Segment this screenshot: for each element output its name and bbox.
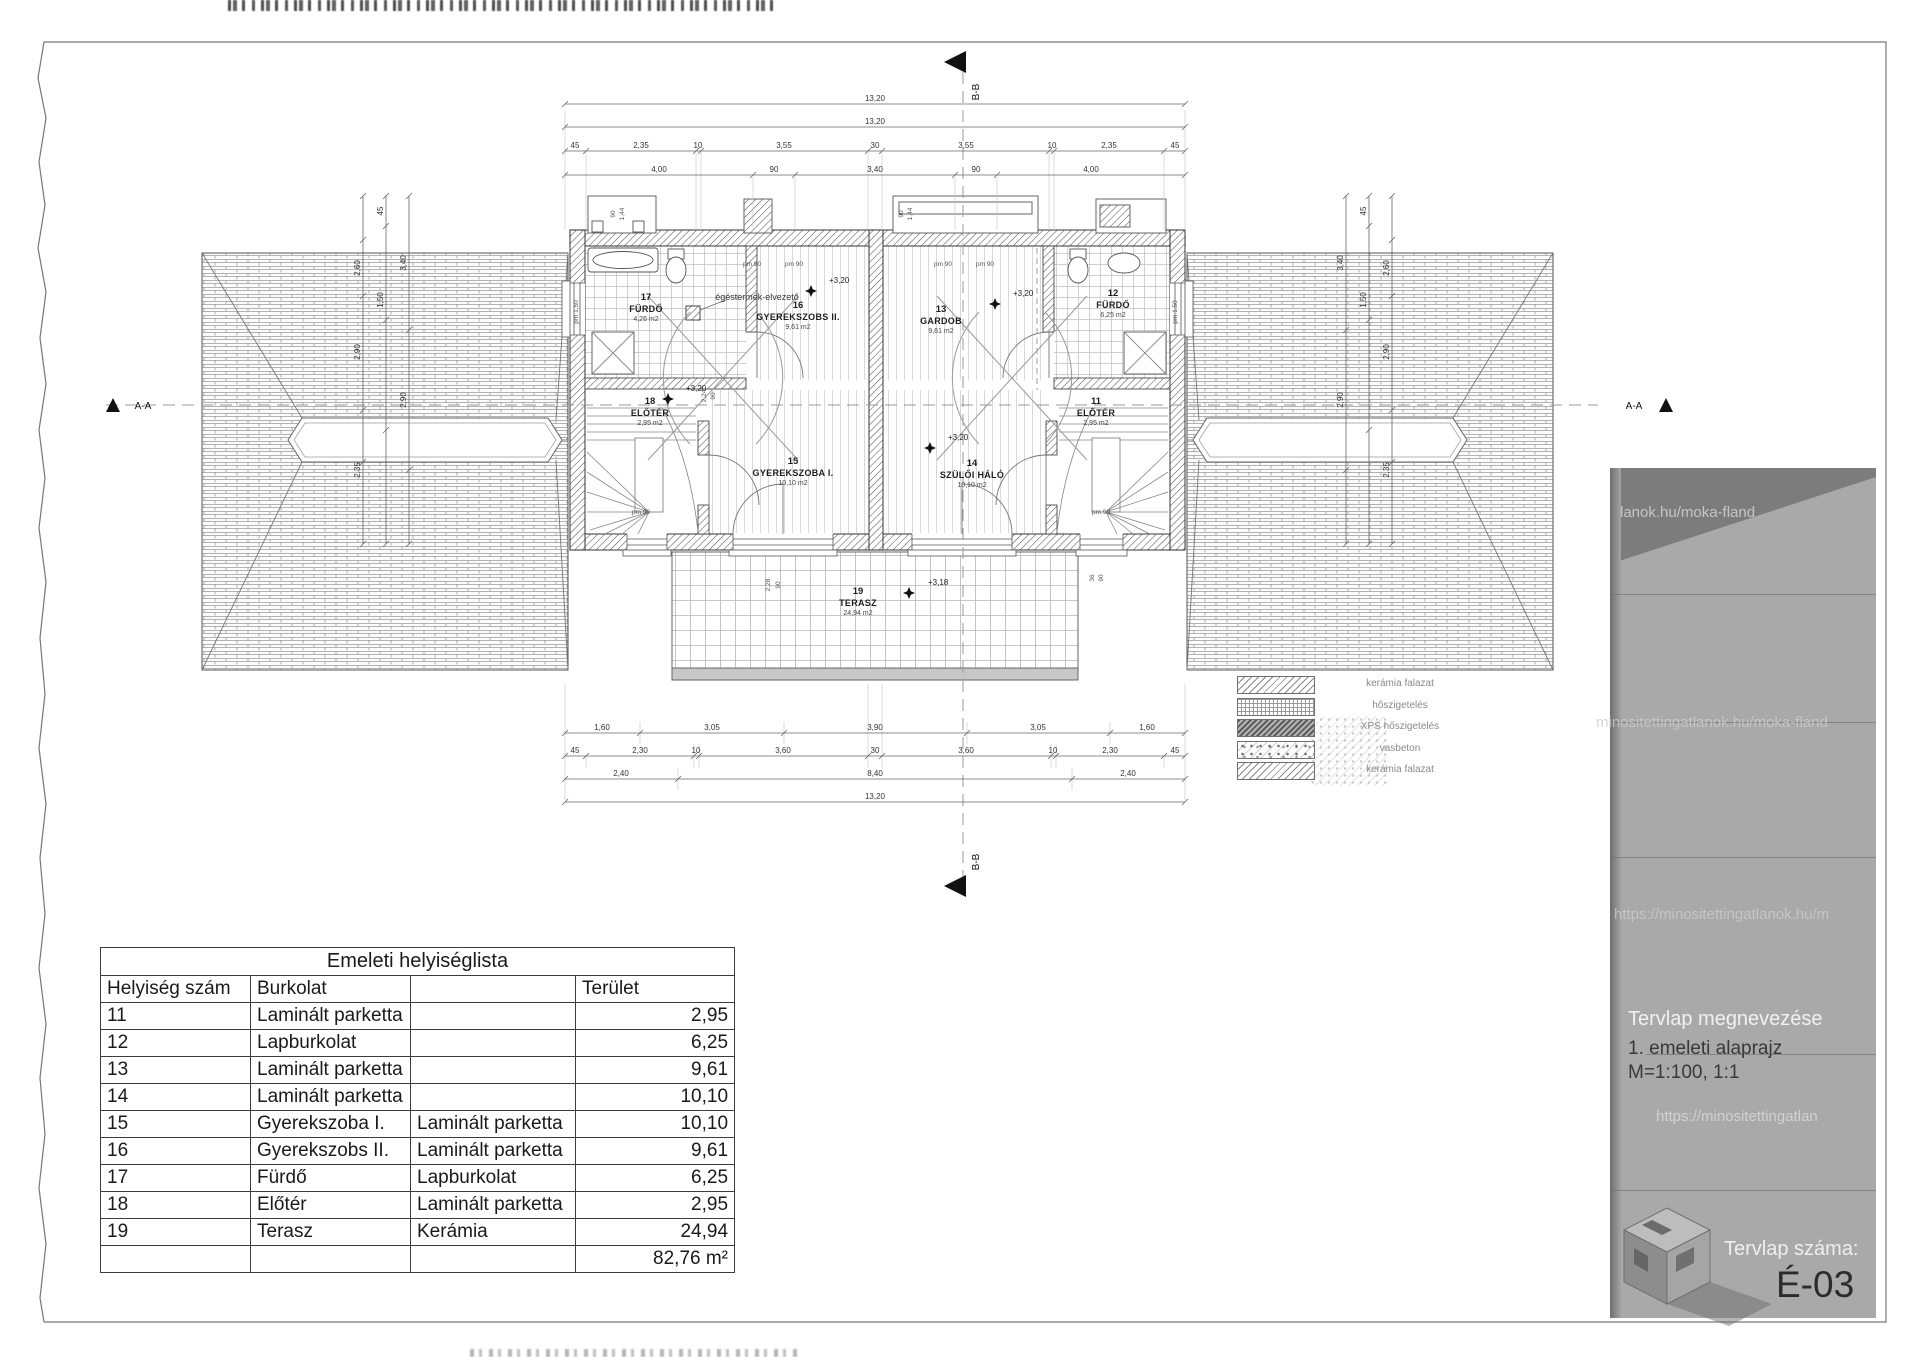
small-dim-label: 90: [775, 581, 782, 589]
dimension-label: 2,90: [1382, 344, 1391, 360]
dimension-label: 3,40: [399, 255, 408, 271]
room-name: FÜRDŐ: [1096, 299, 1130, 310]
dimension-label: 2,90: [353, 344, 362, 360]
room-cell-area: 10,10: [576, 1111, 735, 1138]
dimension-label: 3,40: [1336, 255, 1345, 271]
watermark: minositettingatlanok.hu/moka-fland: [1596, 714, 1828, 731]
room-number: 15: [788, 456, 799, 467]
legend-item: kerámia falazat: [1237, 676, 1467, 695]
legend-label: kerámia falazat: [1337, 678, 1463, 689]
legend-item: vasbeton: [1237, 741, 1467, 760]
dimension-label: 3,90: [867, 723, 883, 732]
col-header-blank: [411, 976, 576, 1003]
dimension-label: 45: [1359, 206, 1368, 215]
legend-label: vasbeton: [1337, 743, 1463, 754]
room-cell-area: 9,61: [576, 1138, 735, 1165]
room-row: 15Gyerekszoba I.Laminált parketta10,10: [101, 1111, 735, 1138]
room-cell-c2: Laminált parketta: [251, 1003, 411, 1030]
room-cell-area: 10,10: [576, 1084, 735, 1111]
room-cell-c3: [411, 1030, 576, 1057]
room-cell-area: 2,95: [576, 1192, 735, 1219]
dimension-label: 1,60: [594, 723, 610, 732]
dimension-label: 3,55: [776, 141, 792, 150]
parapet-label: pm 90: [743, 261, 761, 268]
panel-divider: [1610, 594, 1876, 595]
room-row: 12Lapburkolat6,25: [101, 1030, 735, 1057]
dimension-label: 3,55: [958, 141, 974, 150]
room-row: 18ElőtérLaminált parketta2,95: [101, 1192, 735, 1219]
level-value: +3,18: [928, 578, 949, 587]
roof-right: [1187, 253, 1553, 670]
dimension-label: 90: [770, 165, 779, 174]
small-dim-label: 90: [610, 210, 617, 218]
dimension-label: 45: [376, 206, 385, 215]
watermark: https://minositettingatlan: [1656, 1108, 1818, 1125]
section-b-arrow-bottom: [944, 875, 966, 897]
room-row: 13Laminált parketta9,61: [101, 1057, 735, 1084]
flue-label: égéstermék-elvezető: [715, 292, 799, 302]
dimension-label: 1,60: [1139, 723, 1155, 732]
room-number: 11: [1091, 396, 1102, 407]
room-cell-c3: Laminált parketta: [411, 1111, 576, 1138]
room-cell-area: 2,95: [576, 1003, 735, 1030]
room-cell-num: 11: [101, 1003, 251, 1030]
small-dim-label: 90: [1098, 574, 1105, 582]
room-number: 16: [793, 300, 804, 311]
room-name: ELŐTÉR: [1077, 407, 1116, 418]
room-name: GARDOB: [920, 316, 962, 326]
room-area: 10,10 m2: [778, 480, 807, 487]
col-header-material: Burkolat: [251, 976, 411, 1003]
room-cell-c3: Lapburkolat: [411, 1165, 576, 1192]
dimension-label: 3,60: [775, 746, 791, 755]
room-cell-c2: Laminált parketta: [251, 1084, 411, 1111]
room-cell-num: 19: [101, 1219, 251, 1246]
terrace: [672, 552, 1078, 680]
dimension-label: 30: [871, 746, 880, 755]
legend: kerámia falazathőszigetelésXPS hőszigete…: [1237, 676, 1467, 788]
legend-item: kerámia falazat: [1237, 762, 1467, 781]
flue: [686, 306, 700, 320]
room-cell-c2: Gyerekszobs II.: [251, 1138, 411, 1165]
toilet-2: [1068, 257, 1088, 283]
room-cell-c2: Terasz: [251, 1219, 411, 1246]
bathtub-basin: [593, 252, 653, 269]
chimney: [744, 199, 772, 233]
table-title: Emeleti helyiséglista: [101, 948, 735, 976]
room-number: 13: [936, 304, 947, 315]
parapet-label: pm 90: [785, 261, 803, 268]
room-area: 4,26 m2: [633, 316, 658, 323]
dimension-label: 2,35: [633, 141, 649, 150]
dimension-label: 8,40: [867, 769, 883, 778]
room-number: 18: [645, 396, 656, 407]
dimension-label: 2,30: [632, 746, 648, 755]
panel-divider: [1610, 857, 1876, 858]
total-row: 82,76 m²: [101, 1246, 735, 1273]
washbasin: [1108, 253, 1140, 273]
legend-item: XPS hőszigetelés: [1237, 719, 1467, 738]
room-cell-c3: [411, 1003, 576, 1030]
room-row: 17FürdőLapburkolat6,25: [101, 1165, 735, 1192]
room-area: 6,25 m2: [1100, 312, 1125, 319]
watermark: lanok.hu/moka-fland: [1620, 504, 1755, 521]
sheet-scale: M=1:100, 1:1: [1628, 1062, 1739, 1084]
legend-label: kerámia falazat: [1337, 764, 1463, 775]
col-header-room-number: Helyiség szám: [101, 976, 251, 1003]
room-area: 2,95 m2: [637, 420, 662, 427]
room-cell-c3: Kerámia: [411, 1219, 576, 1246]
room-name: TERASZ: [839, 598, 877, 608]
dimension-label: 2,30: [1102, 746, 1118, 755]
room-cell-c2: Fürdő: [251, 1165, 411, 1192]
sheet-title: 1. emeleti alaprajz: [1628, 1038, 1782, 1060]
col-header-area: Terület: [576, 976, 735, 1003]
dimension-label: 2,35: [1101, 141, 1117, 150]
dimension-label: 45: [571, 141, 580, 150]
room-cell-area: 9,61: [576, 1057, 735, 1084]
dimension-label: 2,90: [1336, 392, 1345, 408]
watermark: https://minositettingatlanok.hu/m: [1614, 906, 1829, 923]
room-cell-c3: [411, 1057, 576, 1084]
section-b-label-top: B-B: [971, 83, 982, 100]
dimension-label: 45: [1171, 746, 1180, 755]
level-value: +3,20: [829, 276, 850, 285]
legend-swatch-diag: [1237, 676, 1315, 694]
level-value: +3,20: [948, 433, 969, 442]
parapet-label: pm 90: [1092, 509, 1110, 516]
dimension-label: 2,40: [1120, 769, 1136, 778]
dimension-label: 45: [571, 746, 580, 755]
sheet-name-label: Tervlap megnevezése: [1628, 1008, 1823, 1031]
room-cell-c2: Előtér: [251, 1192, 411, 1219]
room-cell-area: 24,94: [576, 1219, 735, 1246]
dimension-label: 4,00: [1083, 165, 1099, 174]
dimension-label: 90: [972, 165, 981, 174]
room-cell-num: 12: [101, 1030, 251, 1057]
room-list-table: Emeleti helyiséglista Helyiség szám Burk…: [100, 947, 735, 1273]
dimension-label: 3,60: [958, 746, 974, 755]
section-b-label-bottom: B-B: [971, 853, 982, 870]
dimension-label: 30: [871, 141, 880, 150]
room-number: 17: [641, 292, 652, 303]
legend-swatch-concrete: [1237, 741, 1315, 759]
room-cell-area: 6,25: [576, 1030, 735, 1057]
dimension-label: 3,05: [1030, 723, 1046, 732]
dormers: [588, 196, 1166, 233]
room-number: 19: [853, 586, 864, 597]
small-dim-label: pm 1,50: [573, 300, 580, 324]
room-cell-num: 13: [101, 1057, 251, 1084]
dimension-label: 2,90: [399, 392, 408, 408]
room-cell-c2: Lapburkolat: [251, 1030, 411, 1057]
parapet-label: pm 90: [632, 509, 650, 516]
room-area: 10,10 m2: [957, 482, 986, 489]
dimension-label: 10: [1048, 141, 1057, 150]
room-row: 16Gyerekszobs II.Laminált parketta9,61: [101, 1138, 735, 1165]
roof-left: [202, 253, 568, 670]
extension-lines-bottom: [565, 684, 1185, 800]
small-dim-label: 2,28: [765, 578, 772, 591]
dimension-label: 13,20: [865, 117, 886, 126]
level-value: +3,20: [1013, 289, 1034, 298]
room-cell-c3: Laminált parketta: [411, 1192, 576, 1219]
parapet-label: pm 90: [976, 261, 994, 268]
room-number: 12: [1108, 288, 1119, 299]
drawing-sheet: A-A A-A B-B B-B égéstermék-elvezető 13,2…: [0, 0, 1920, 1357]
dimension-label: 10: [1049, 746, 1058, 755]
room-cell-num: 14: [101, 1084, 251, 1111]
room-cell-c3: Laminált parketta: [411, 1138, 576, 1165]
small-dim-label: 1,44: [907, 207, 914, 220]
section-b-arrow-top: [944, 51, 966, 73]
room-name: GYEREKSZOBA I.: [753, 468, 834, 478]
room-row: 11Laminált parketta2,95: [101, 1003, 735, 1030]
room-cell-num: 15: [101, 1111, 251, 1138]
room-cell-area: 6,25: [576, 1165, 735, 1192]
dimension-label: 2,35: [1382, 462, 1391, 478]
room-name: GYEREKSZOBS II.: [756, 312, 840, 322]
small-dim-label: 36: [1089, 574, 1096, 582]
room-area: 24,94 m2: [843, 610, 872, 617]
dimension-label: 1,50: [1359, 292, 1368, 308]
dimension-label: 13,20: [865, 94, 886, 103]
dimension-label: 2,35: [353, 462, 362, 478]
small-dim-label: 2,24: [701, 389, 708, 402]
panel-divider: [1610, 1190, 1876, 1191]
dimension-label: 3,40: [867, 165, 883, 174]
room-number: 14: [967, 458, 978, 469]
room-area: 9,61 m2: [928, 328, 953, 335]
dimension-label: 3,05: [704, 723, 720, 732]
legend-swatch-dense: [1237, 719, 1315, 737]
legend-swatch-grid: [1237, 698, 1315, 716]
small-dim-label: 90: [898, 210, 905, 218]
title-block: lanok.hu/moka-fland minositettingatlanok…: [1610, 468, 1876, 1318]
dimension-label: 2,40: [613, 769, 629, 778]
room-name: ELŐTÉR: [631, 407, 670, 418]
legend-item: hőszigetelés: [1237, 698, 1467, 717]
dimension-label: 10: [692, 746, 701, 755]
room-area: 2,95 m2: [1083, 420, 1108, 427]
toilet: [666, 257, 686, 283]
room-row: 19TeraszKerámia24,94: [101, 1219, 735, 1246]
dimension-label: 1,50: [376, 292, 385, 308]
total-area: 82,76 m²: [576, 1246, 735, 1273]
small-dim-label: 1,44: [619, 207, 626, 220]
dimension-label: 4,00: [651, 165, 667, 174]
room-row: 14Laminált parketta10,10: [101, 1084, 735, 1111]
room-14-floor: [883, 390, 1046, 534]
dimension-label: 2,60: [353, 260, 362, 276]
building: [562, 196, 1193, 556]
dimension-label: 45: [1171, 141, 1180, 150]
dimension-label: 10: [694, 141, 703, 150]
room-name: SZÜLŐI HÁLÓ: [940, 469, 1004, 480]
room-cell-num: 17: [101, 1165, 251, 1192]
section-a-label-left: A-A: [135, 401, 152, 412]
room-area: 9,61 m2: [785, 324, 810, 331]
room-cell-c3: [411, 1084, 576, 1111]
legend-label: hőszigetelés: [1337, 700, 1463, 711]
publisher-logo: [1612, 1204, 1792, 1329]
section-a-label-right: A-A: [1626, 401, 1643, 412]
dimension-label: 13,20: [865, 792, 886, 801]
room-cell-num: 16: [101, 1138, 251, 1165]
room-name: FÜRDŐ: [629, 303, 663, 314]
small-dim-label: 90: [710, 392, 717, 400]
small-dim-label: pm 1,50: [1172, 300, 1179, 324]
legend-swatch-diag: [1237, 762, 1315, 780]
room-cell-c2: Laminált parketta: [251, 1057, 411, 1084]
room-cell-c2: Gyerekszoba I.: [251, 1111, 411, 1138]
legend-label: XPS hőszigetelés: [1337, 721, 1463, 732]
dimension-label: 2,60: [1382, 260, 1391, 276]
section-a-arrow-right: [1659, 398, 1673, 412]
parapet-label: pm 90: [934, 261, 952, 268]
room-cell-num: 18: [101, 1192, 251, 1219]
